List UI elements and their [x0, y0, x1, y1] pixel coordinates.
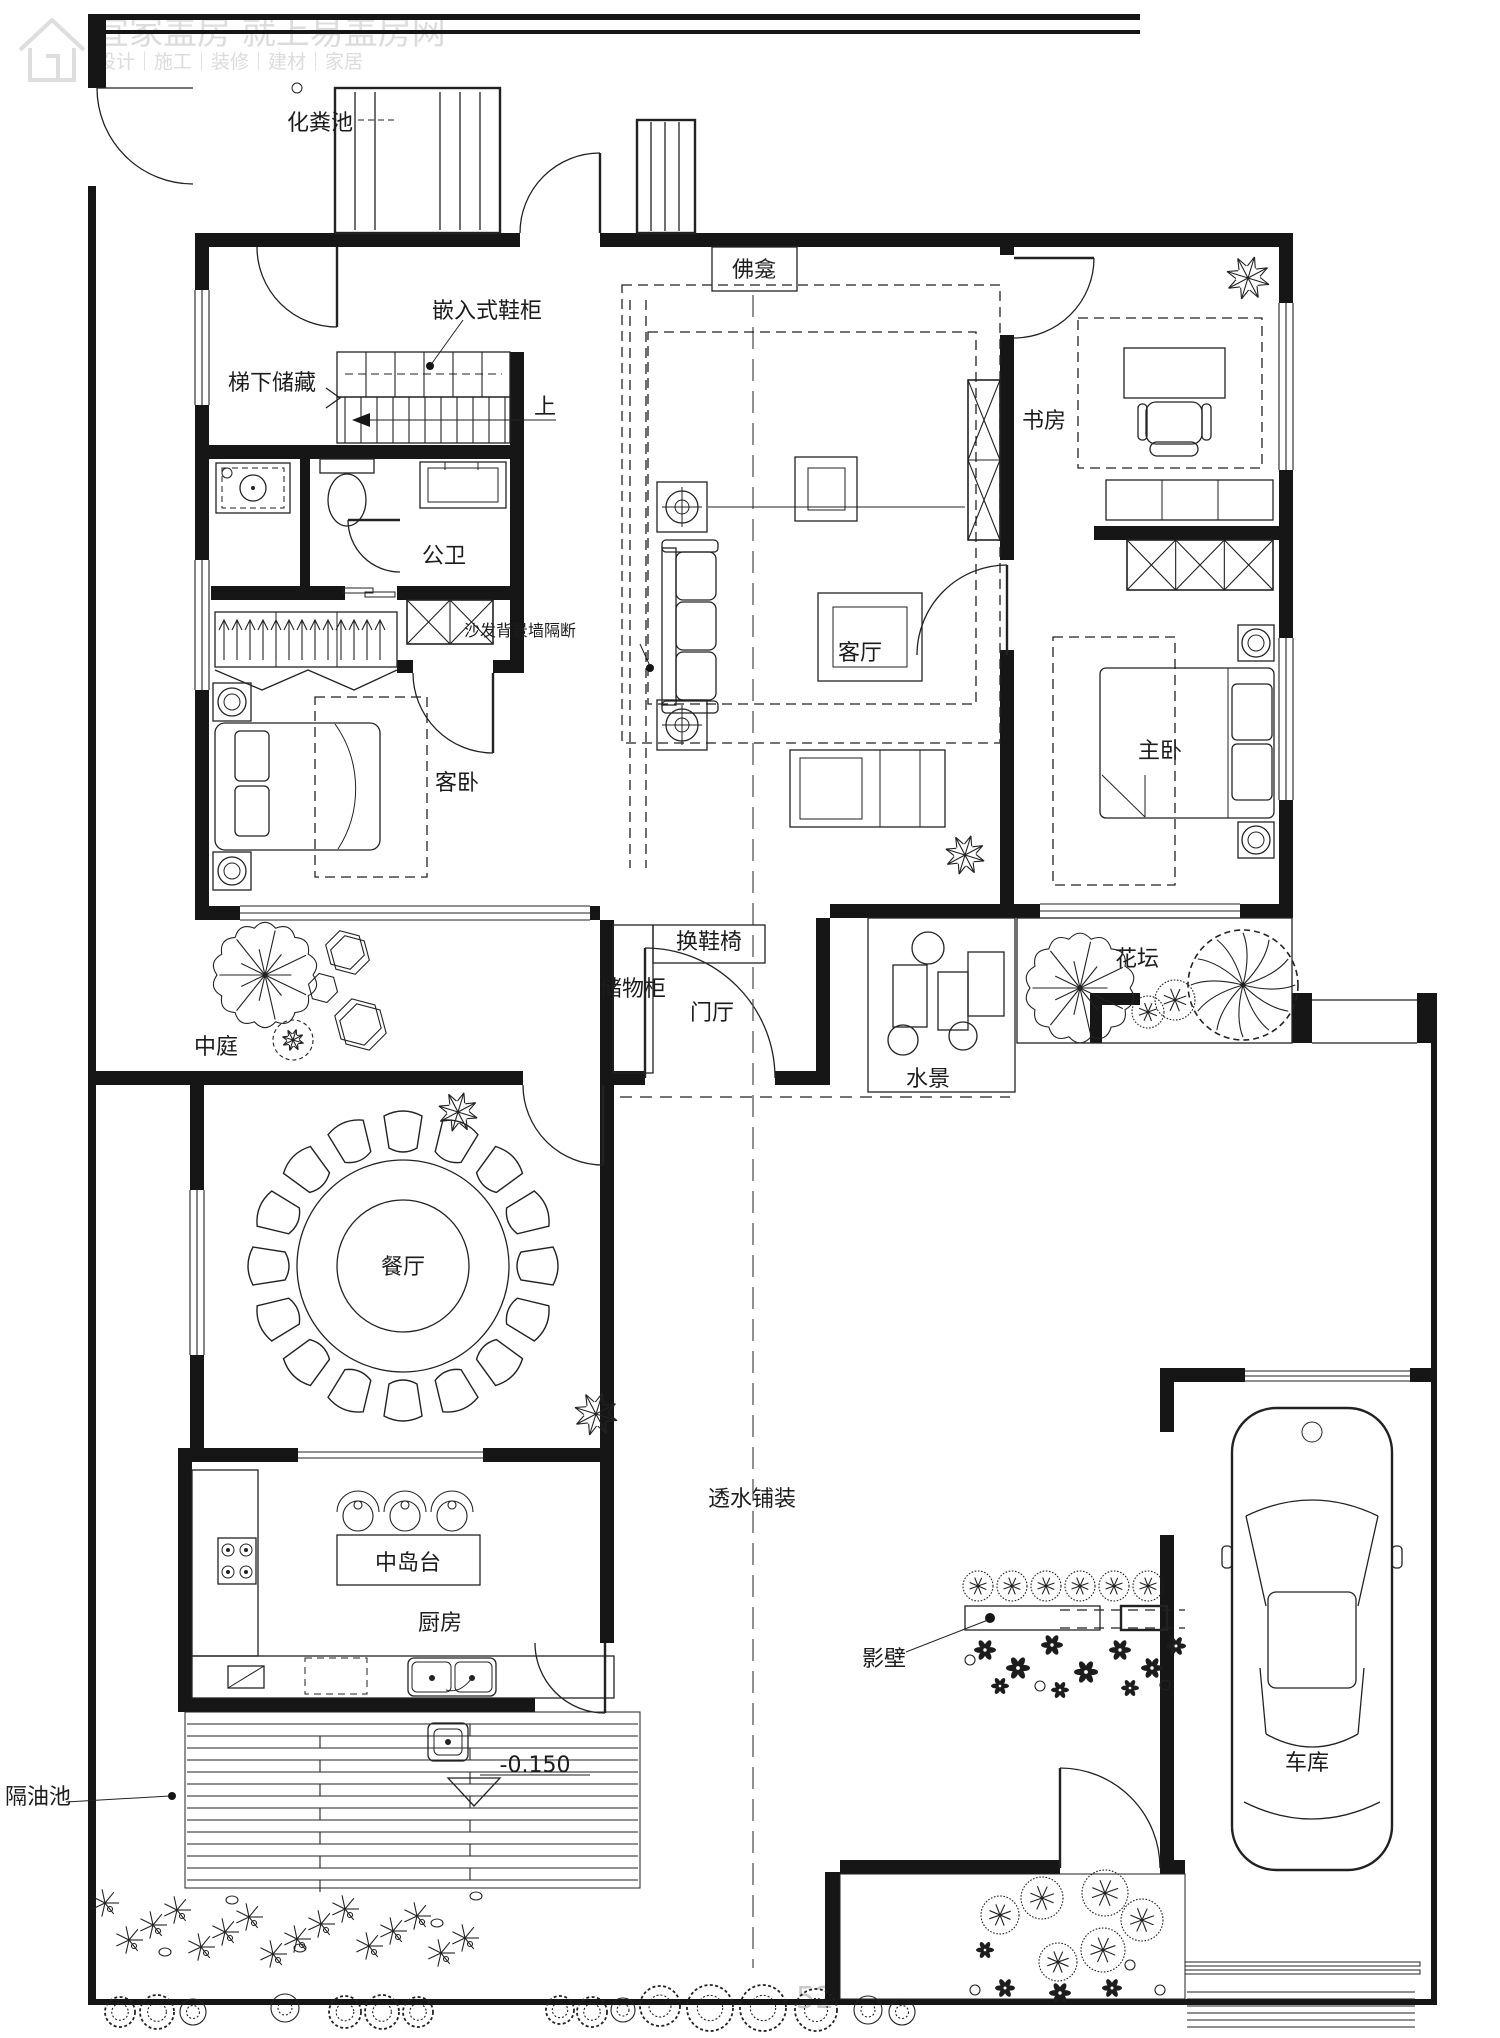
master-bedroom-furniture	[1100, 625, 1274, 858]
label-living-room: 客厅	[838, 641, 882, 666]
label-grease-trap: 隔油池	[5, 1785, 71, 1810]
house-logo-icon	[20, 20, 84, 80]
study-furniture	[1106, 348, 1273, 520]
label-septic-tank: 化粪池	[287, 111, 353, 136]
living-room-furniture	[657, 457, 965, 827]
leaders	[640, 644, 654, 672]
label-elevation: -0.150	[500, 1753, 571, 1778]
label-shoe-cabinet: 嵌入式鞋柜	[432, 299, 542, 324]
label-guest-bedroom: 客卧	[435, 771, 479, 796]
garage	[1185, 1408, 1420, 2027]
planter-box	[840, 1874, 1185, 1999]
label-water-feature: 水景	[906, 1067, 950, 1092]
public-bathroom	[216, 459, 506, 526]
label-public-bath: 公卫	[422, 544, 466, 569]
label-up: 上	[534, 395, 556, 420]
label-study: 书房	[1022, 409, 1066, 434]
screen-wall	[906, 1606, 1100, 1652]
house-walls	[96, 233, 1437, 1999]
guest-bedroom-furniture	[213, 612, 397, 890]
entry-porch	[335, 88, 695, 233]
label-kitchen: 厨房	[418, 1611, 462, 1636]
label-flower-bed: 花坛	[1115, 947, 1159, 972]
label-garage: 车库	[1285, 1751, 1329, 1776]
deck	[66, 1712, 640, 1892]
kitchen-furniture	[192, 1470, 614, 1698]
label-sofa-partition: 沙发背景墙隔断	[464, 621, 576, 640]
label-shoe-bench: 换鞋椅	[676, 930, 742, 955]
label-dining-room: 餐厅	[381, 1255, 425, 1280]
label-master-bedroom: 主卧	[1138, 739, 1182, 764]
landscape	[92, 257, 1298, 2031]
water-feature	[868, 918, 1015, 1092]
flower-bed	[1017, 918, 1292, 1043]
label-shrine: 佛龛	[732, 258, 776, 283]
floor-plan-canvas: 宜家盖房 就上易盖房网 设计｜施工｜装修｜建材｜家居 52	[0, 0, 1500, 2038]
watermark-line2: 设计｜施工｜装修｜建材｜家居	[97, 51, 363, 73]
label-atrium: 中庭	[194, 1035, 238, 1060]
car	[1222, 1408, 1402, 1870]
label-permeable-paving: 透水铺装	[708, 1487, 796, 1512]
label-screen-wall: 影壁	[862, 1647, 906, 1672]
label-storage-cabinet: 储物柜	[600, 977, 666, 1002]
windows	[188, 290, 1410, 1458]
label-foyer: 门厅	[690, 1001, 734, 1026]
label-kitchen-island: 中岛台	[375, 1551, 441, 1576]
label-understair-storage: 梯下储藏	[228, 371, 316, 396]
